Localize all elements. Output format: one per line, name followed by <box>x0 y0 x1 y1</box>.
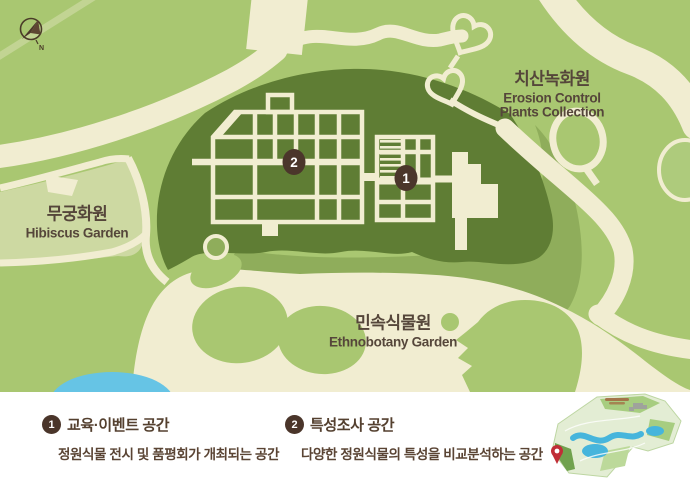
legend-title: 교육·이벤트 공간 <box>67 414 169 435</box>
round-bed <box>205 236 227 258</box>
overview-minimap[interactable] <box>545 391 690 488</box>
map-area: N 치산녹화원 Erosion Control Plants Collectio… <box>0 0 690 392</box>
legend-item-1: 1 교육·이벤트 공간 정원식물 전시 및 품평회가 개최되는 공간 <box>42 414 279 463</box>
legend-title: 특성조사 공간 <box>310 414 394 435</box>
garden-map-screenshot: N 치산녹화원 Erosion Control Plants Collectio… <box>0 0 690 490</box>
compass-north-text: N <box>39 45 44 52</box>
legend-number-badge: 2 <box>285 415 304 434</box>
garden-map-canvas: N <box>0 0 690 392</box>
legend-number-badge: 1 <box>42 415 61 434</box>
legend-description: 정원식물 전시 및 품평회가 개최되는 공간 <box>58 443 279 463</box>
legend-item-2: 2 특성조사 공간 다양한 정원식물의 특성을 비교분석하는 공간 <box>285 414 543 463</box>
legend-description: 다양한 정원식물의 특성을 비교분석하는 공간 <box>301 443 543 463</box>
map-marker-2[interactable]: 2 <box>283 149 306 175</box>
map-marker-1[interactable]: 1 <box>395 165 418 191</box>
